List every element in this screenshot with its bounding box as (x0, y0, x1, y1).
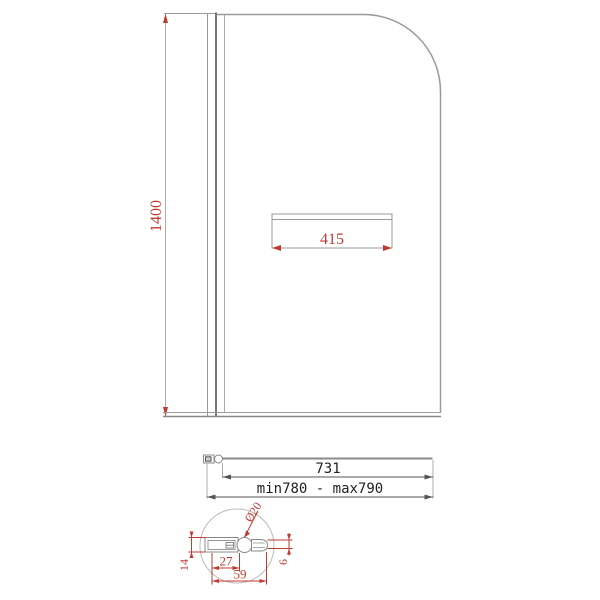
plan-adjustment-range-label: min780 - max790 (255, 482, 385, 496)
profile-height-dimension-label: 14 (178, 559, 190, 571)
plan-glass-width-dimension-label: 731 (315, 462, 340, 476)
total-depth-dimension-label: 59 (234, 568, 247, 581)
pivot-knob (237, 538, 252, 553)
technical-drawing-shower-screen: 1400 415 731 min780 - max790 Ø20 27 59 1… (0, 0, 600, 600)
front-height-dimension-label: 1400 (149, 200, 165, 232)
drawing-linework (0, 0, 600, 600)
towel-bar-width-dimension-label: 415 (320, 232, 344, 248)
wall-profile-width-dimension-label: 27 (220, 555, 233, 568)
glass-thickness-dimension-label: 6 (277, 559, 289, 565)
front-view (163, 13, 441, 418)
